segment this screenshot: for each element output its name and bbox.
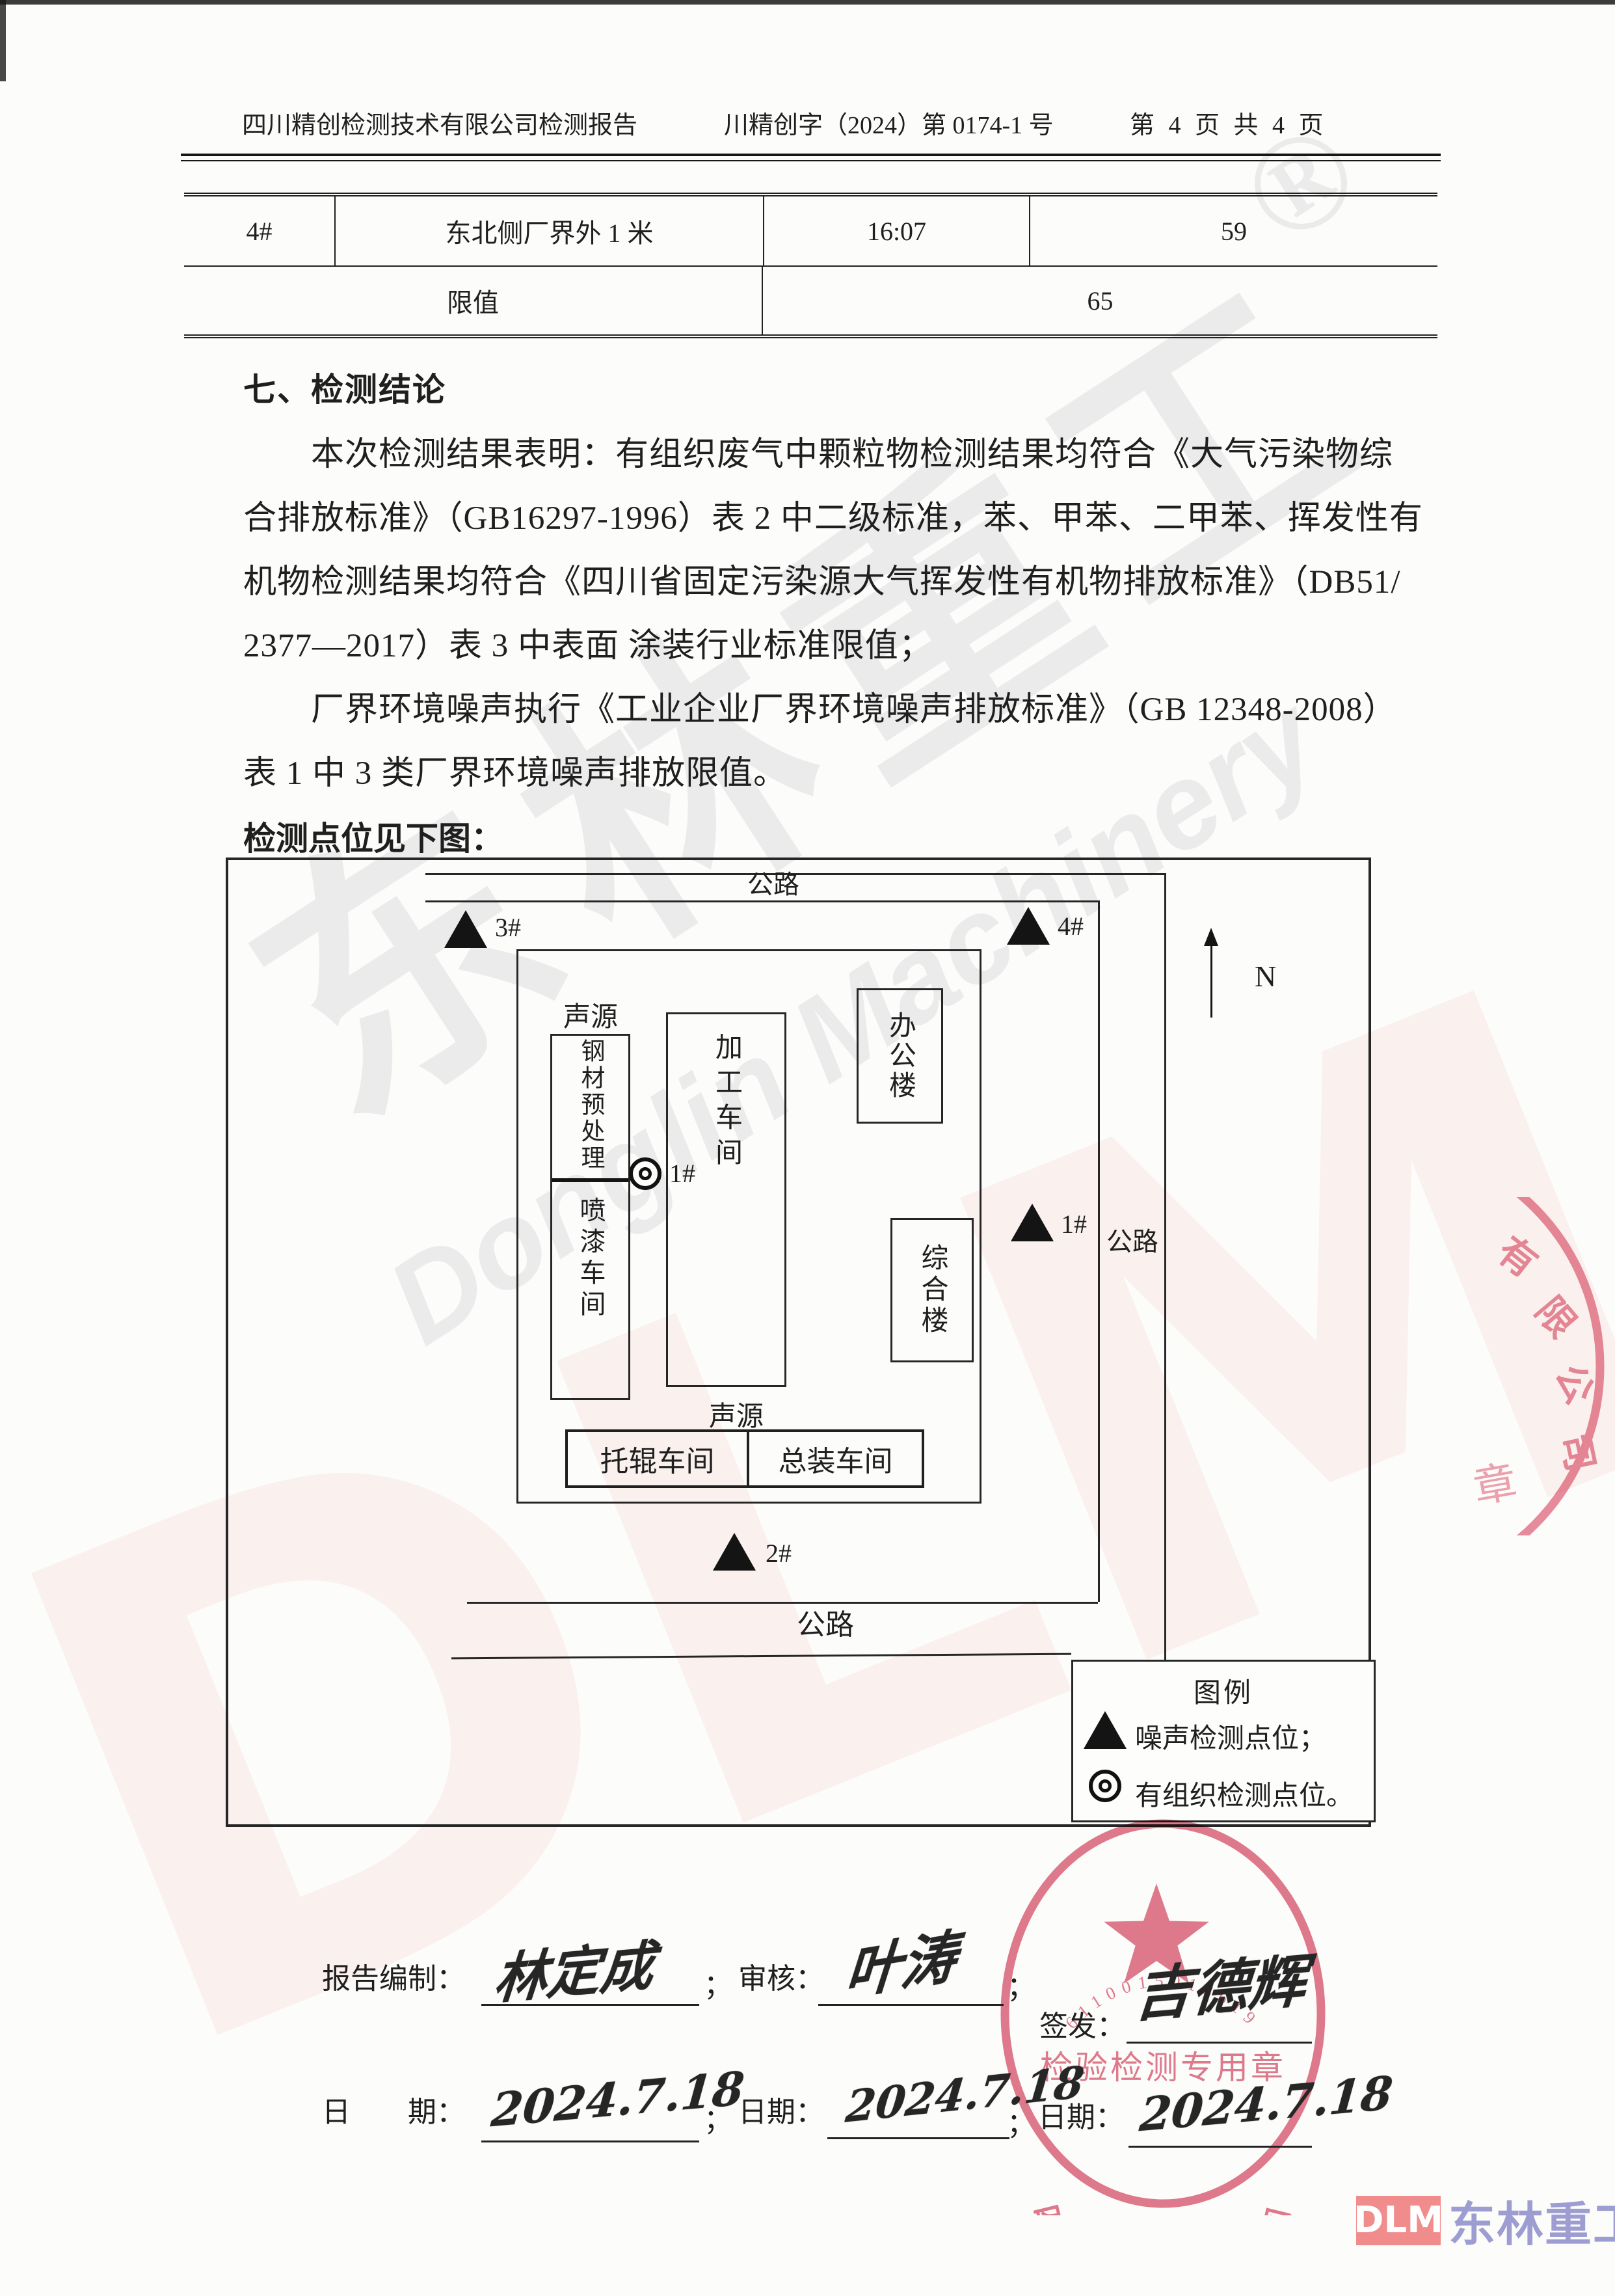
conclusion-line: 表 1 中 3 类厂界环境噪声排放限值。 xyxy=(243,742,1388,805)
north-arrow-shaft xyxy=(1210,945,1212,1018)
conclusion-section: 七、检测结论 本次检测结果表明：有组织废气中颗粒物检测结果均符合《大气污染物综 … xyxy=(243,357,1388,871)
conclusion-line: 机物检测结果均符合《四川省固定污染源大气挥发性有机物排放标准》（DB51/ xyxy=(243,550,1388,614)
edge-seal-char: 限 xyxy=(1527,1290,1584,1345)
edge-seal-partial: 有 限 公 司 章 xyxy=(1457,1197,1615,1535)
cell-limit-value: 65 xyxy=(763,267,1437,334)
building-left: 钢材预处理 喷漆车间 xyxy=(550,1034,630,1400)
conclusion-line: 合排放标准》（GB16297-1996）表 2 中二级标准，苯、甲苯、二甲苯、挥… xyxy=(243,487,1388,550)
steel-pretreatment-label: 钢材预处理 xyxy=(578,1038,602,1172)
steel-pretreatment-area: 钢材预处理 xyxy=(552,1036,628,1178)
header-rule xyxy=(181,154,1441,161)
roller-workshop-label: 托辊车间 xyxy=(568,1432,749,1485)
header-page-info: 第 4 页 共 4 页 xyxy=(1130,109,1328,142)
reviewer-signature: 叶涛 xyxy=(842,1910,960,2010)
scan-edge-corner xyxy=(0,0,6,81)
conclusion-heading: 七、检测结论 xyxy=(243,357,1388,423)
cell-location: 东北侧厂界外 1 米 xyxy=(336,196,764,265)
prepared-by-signature: 林定成 xyxy=(491,1922,658,2014)
issuer-signature: 吉德辉 xyxy=(1132,1934,1310,2033)
noise-point-2-label: 2# xyxy=(766,1538,792,1569)
site-map: 公路 公路 公路 3# 4# 1# 2# N 声源 钢材预处理 xyxy=(226,858,1371,1827)
north-arrow-icon xyxy=(1204,928,1218,946)
legend-organized-inner xyxy=(1099,1779,1112,1792)
sound-source-bottom-label: 声源 xyxy=(691,1401,782,1433)
organized-point-icon xyxy=(629,1157,661,1190)
legend-organized-icon xyxy=(1089,1770,1121,1802)
map-legend: 图例 噪声检测点位； 有组织检测点位。 xyxy=(1071,1660,1376,1822)
road-right-label: 公路 xyxy=(1100,1226,1165,1258)
paint-workshop-area: 喷漆车间 xyxy=(552,1182,628,1398)
conclusion-line: 本次检测结果表明：有组织废气中颗粒物检测结果均符合《大气污染物综 xyxy=(243,423,1388,487)
table-limit-row: 限值 65 xyxy=(184,267,1437,334)
conclusion-line: 厂界环境噪声执行《工业企业厂界环境噪声排放标准》（GB 12348-2008） xyxy=(243,678,1388,742)
noise-point-2-icon xyxy=(713,1533,756,1571)
date-label-wide: 日 期： xyxy=(322,2088,465,2130)
legend-title: 图例 xyxy=(1073,1671,1374,1710)
date-underline xyxy=(827,2137,1009,2139)
building-complex: 综合楼 xyxy=(890,1218,974,1362)
building-processing: 加工车间 xyxy=(666,1012,786,1387)
noise-result-table: 4# 东北侧厂界外 1 米 16:07 59 限值 65 xyxy=(184,193,1437,338)
edge-seal-char: 有 xyxy=(1489,1229,1545,1286)
road-bottom-label: 公路 xyxy=(773,1610,877,1641)
date-underline xyxy=(481,2141,699,2142)
noise-point-3-icon xyxy=(444,910,487,948)
road-top-label: 公路 xyxy=(721,869,825,900)
separator: ； xyxy=(1007,1964,1035,2005)
processing-workshop-label: 加工车间 xyxy=(713,1033,740,1173)
road-right-outer-line xyxy=(1164,873,1166,1660)
legend-noise-text: 噪声检测点位； xyxy=(1135,1716,1326,1756)
edge-seal-char: 司 xyxy=(1553,1429,1602,1475)
scan-edge-top xyxy=(0,0,1615,5)
noise-point-4-icon xyxy=(1007,907,1050,945)
footer-logo-dlm-icon: DLM xyxy=(1356,2196,1441,2245)
road-bottom-lower-line xyxy=(451,1653,1071,1660)
assembly-workshop-label: 总装车间 xyxy=(749,1432,922,1485)
noise-point-3-label: 3# xyxy=(495,912,521,943)
building-office: 办公楼 xyxy=(857,988,943,1124)
footer-logo-name: 东林重工 xyxy=(1448,2186,1615,2254)
noise-point-4-label: 4# xyxy=(1058,911,1084,941)
date-label: 日期： xyxy=(1038,2094,1124,2135)
organized-point-inner xyxy=(639,1167,652,1180)
cell-value: 59 xyxy=(1030,196,1437,265)
edge-seal-char: 章 xyxy=(1470,1458,1521,1512)
noise-point-1-label: 1# xyxy=(1061,1209,1087,1239)
office-building-label: 办公楼 xyxy=(887,1011,914,1101)
workshops-box: 托辊车间 总装车间 xyxy=(565,1429,924,1488)
separator: ； xyxy=(1007,2100,1035,2142)
table-row: 4# 东北侧厂界外 1 米 16:07 59 xyxy=(184,196,1437,267)
paint-workshop-label: 喷漆车间 xyxy=(578,1196,604,1321)
cell-point: 4# xyxy=(184,196,336,265)
legend-noise-icon xyxy=(1084,1711,1127,1749)
date-label: 日期： xyxy=(738,2088,824,2130)
legend-organized-text: 有组织检测点位。 xyxy=(1135,1774,1354,1813)
conclusion-line: 2377—2017）表 3 中表面 涂装行业标准限值； xyxy=(243,614,1388,678)
date-underline xyxy=(1128,2146,1312,2148)
cell-limit-label: 限值 xyxy=(184,267,763,334)
road-top-lower-line xyxy=(425,900,1098,902)
cell-time: 16:07 xyxy=(764,196,1030,265)
report-page: DLM 东林重工® Donglin Machinery 四川精创检测技术有限公司… xyxy=(0,0,1615,2296)
noise-point-1-icon xyxy=(1011,1204,1054,1241)
complex-building-label: 综合楼 xyxy=(918,1243,946,1337)
sound-source-top-label: 声源 xyxy=(545,1002,636,1033)
footer-logo: DLM 东林重工 xyxy=(1356,2186,1615,2254)
reviewer-label: 审核： xyxy=(738,1955,824,1997)
north-label: N xyxy=(1255,959,1276,993)
road-bottom-upper-line xyxy=(467,1602,1098,1604)
separator: ； xyxy=(704,1962,732,2003)
signature-underline xyxy=(1127,2042,1312,2044)
separator: ； xyxy=(704,2096,732,2138)
header-report-title: 四川精创检测技术有限公司检测报告 xyxy=(242,109,637,142)
prepared-by-label: 报告编制： xyxy=(322,1955,465,1997)
header-report-number: 川精创字（2024）第 0174-1 号 xyxy=(724,109,1054,142)
issuer-label: 签发： xyxy=(1039,2003,1125,2044)
